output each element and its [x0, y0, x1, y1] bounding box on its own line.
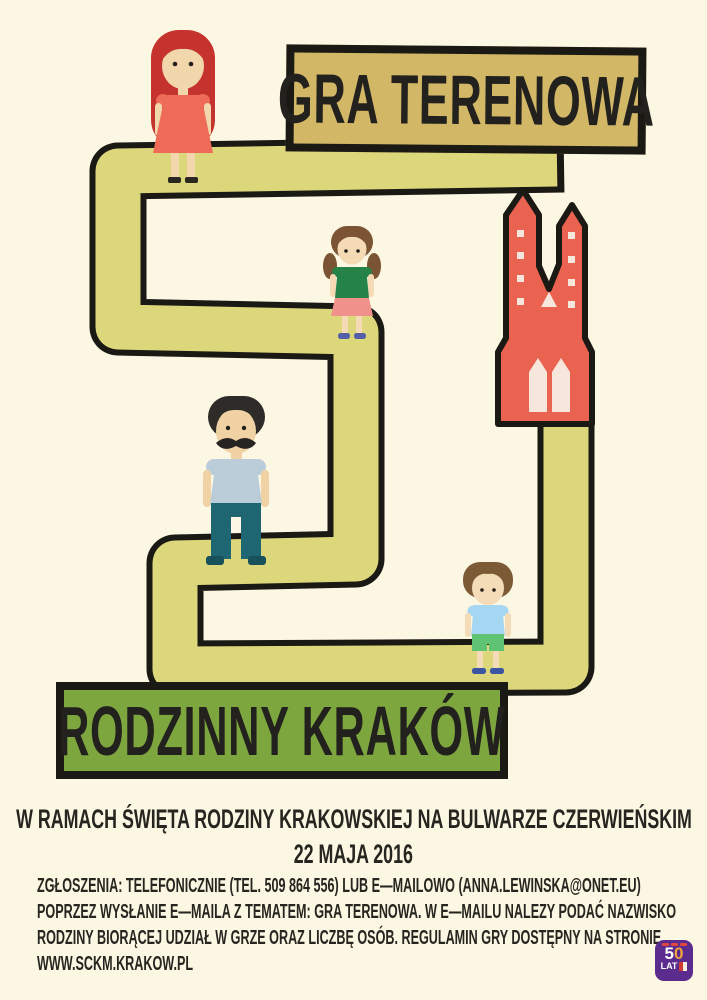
title-banner-label: GRA TERENOWA [277, 58, 655, 141]
church-illustration [498, 190, 592, 424]
details-line-3: RODZINY BIORĄCEJ UDZIAŁ W GRZE ORAZ LICZ… [37, 928, 661, 948]
subtitle-banner-label: RODZINNY KRAKÓW [58, 691, 505, 771]
details-line-4: WWW.SCKM.KRAKOW.PL [37, 954, 193, 974]
details-line-2: POPRZEZ WYSŁANIE E—MAILA Z TEMATEM: GRA … [37, 902, 676, 922]
logo-number: 50 [665, 946, 684, 962]
logo-label: LAT [661, 962, 678, 971]
logo-checker-emblem [679, 962, 687, 971]
event-date-line: 22 MAJA 2016 [0, 841, 707, 868]
title-banner: GRA TERENOWA [286, 44, 647, 154]
poster-background: GRA TERENOWA RODZINNY KRAKÓW W RAMACH ŚW… [0, 0, 707, 1000]
subtitle-banner: RODZINNY KRAKÓW [56, 682, 508, 779]
event-location-line: W RAMACH ŚWIĘTA RODZINY KRAKOWSKIEJ NA B… [0, 806, 707, 833]
details-line-1: ZGŁOSZENIA: TELEFONICZNIE (TEL. 509 864 … [37, 876, 641, 896]
sckm-50-lat-logo: 50 LAT [655, 940, 693, 981]
